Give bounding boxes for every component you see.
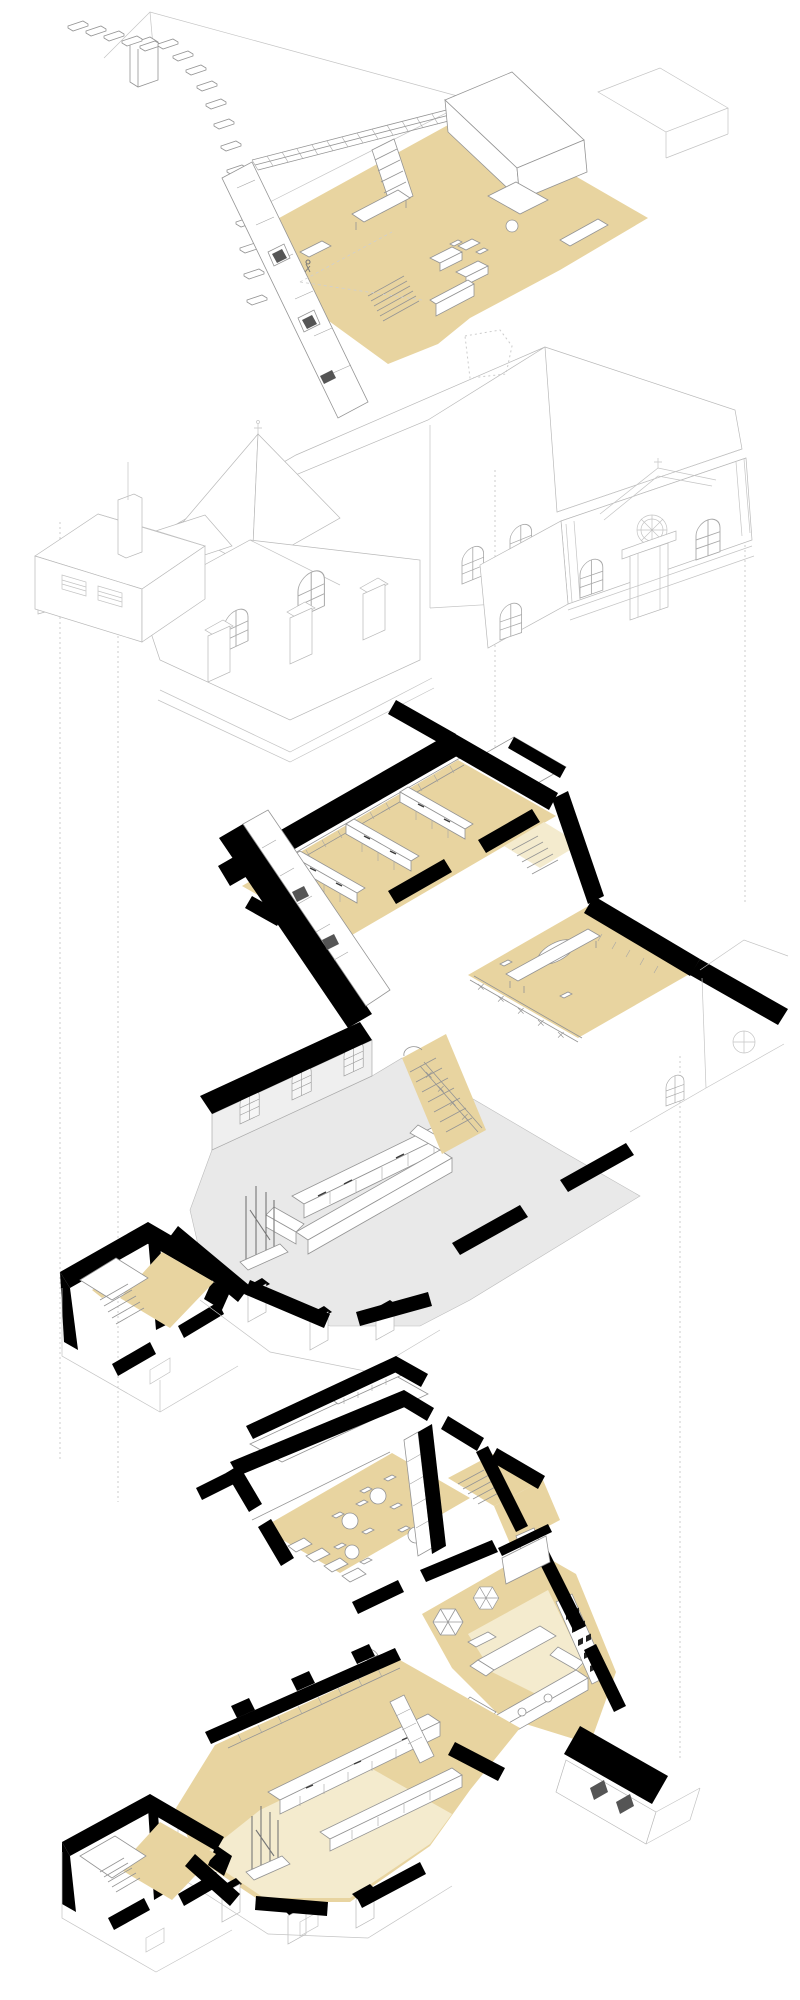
axonometric-drawing [0, 0, 800, 2000]
axonometric-drawing-page [0, 0, 800, 2000]
sink [506, 220, 518, 232]
